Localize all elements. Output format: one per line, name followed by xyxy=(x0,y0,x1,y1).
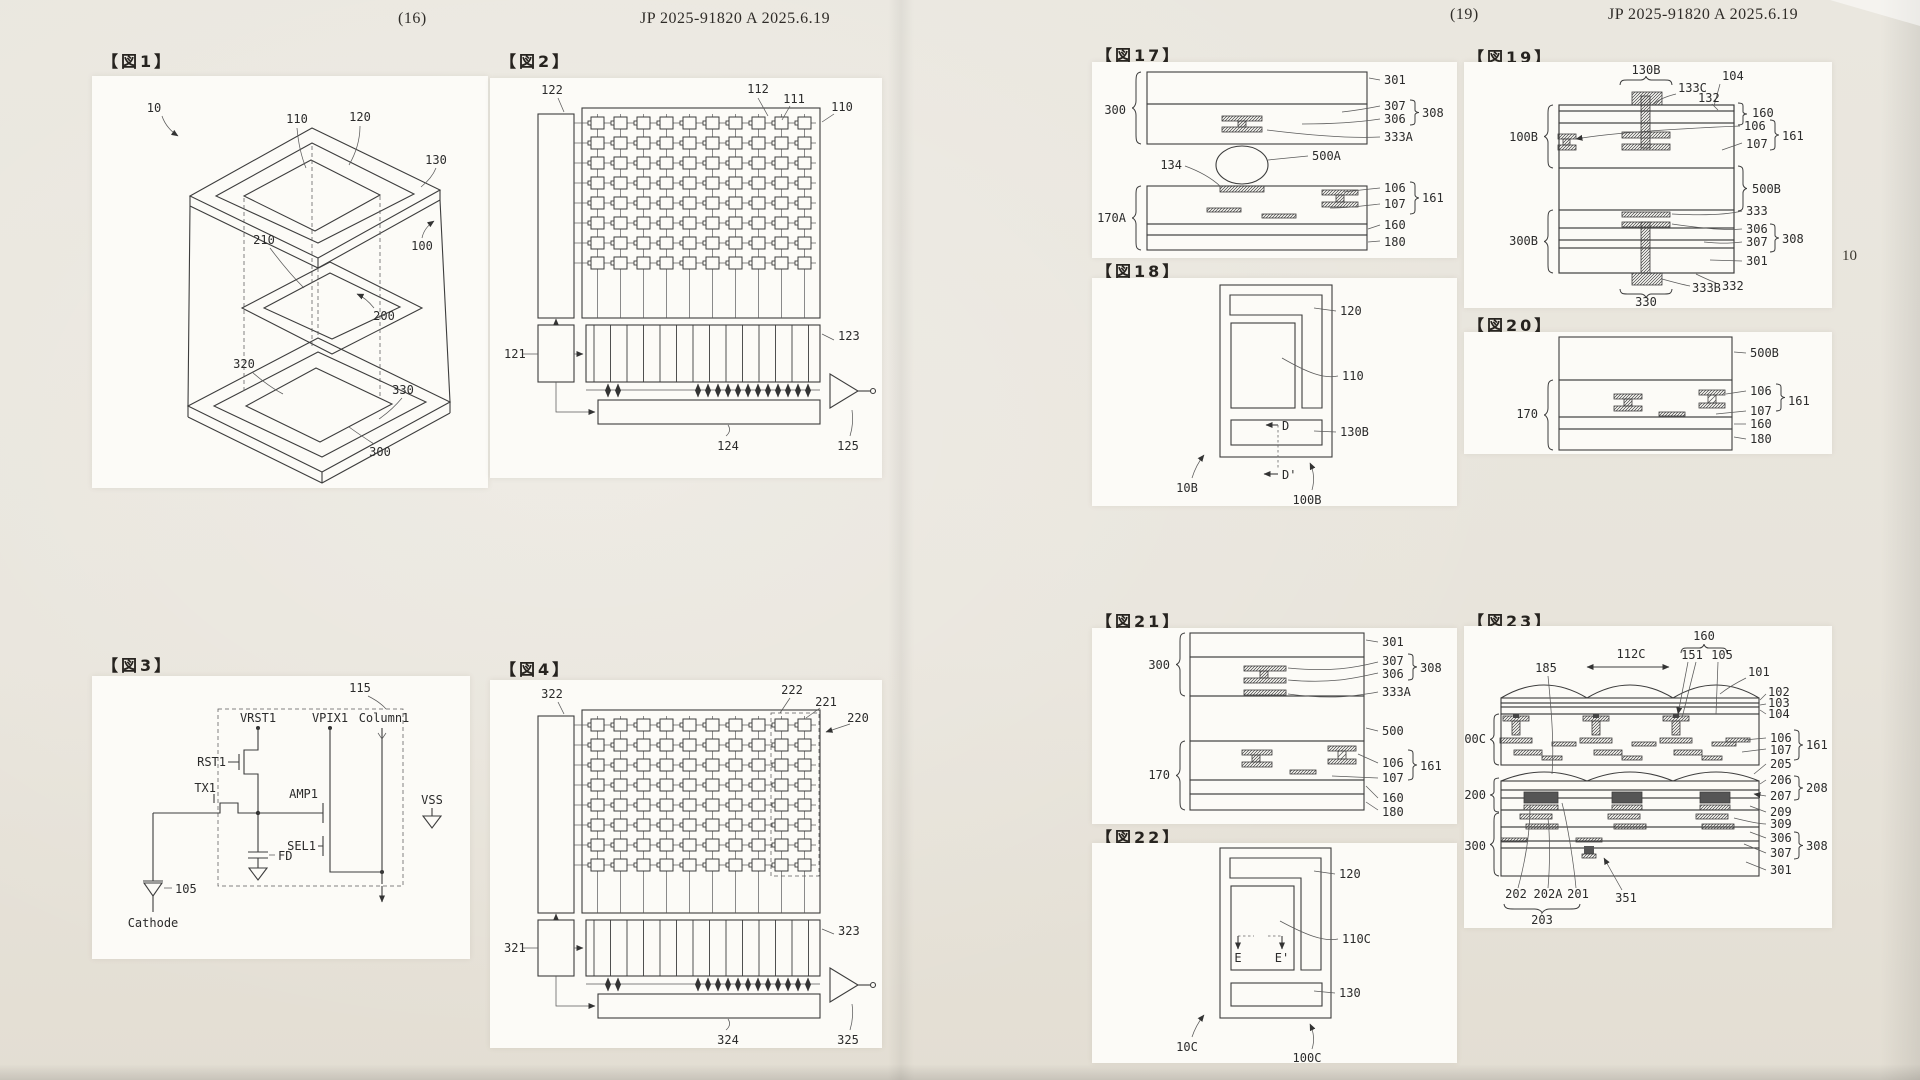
ref-label-130B: 130B xyxy=(1340,425,1369,439)
ref-label-105: 105 xyxy=(1711,648,1733,662)
fig1-title: 【図1】 xyxy=(102,48,173,72)
ref-label-308: 308 xyxy=(1806,839,1828,853)
figure-18-panel: 120 110 130B D D' 10B 100B xyxy=(1092,278,1457,506)
fig21-layers xyxy=(1176,633,1417,810)
ref-label-115: 115 xyxy=(349,681,371,695)
fig17-ref-labels: 300 170A 301 307 306 308 333A 134 500A 1… xyxy=(1097,73,1444,249)
ref-label-130: 130 xyxy=(1339,986,1361,1000)
ref-label-160: 160 xyxy=(1750,417,1772,431)
figure-19-drawing: 130B 133C 104 132 160 106 107 161 100B 5… xyxy=(1464,62,1832,308)
ref-label-112: 112 xyxy=(747,82,769,96)
ref-label-100B: 100B xyxy=(1293,493,1322,506)
ref-label-185: 185 xyxy=(1535,661,1557,675)
figure-2-drawing: 122 112 111 110 121 123 124 125 xyxy=(490,78,882,478)
ref-label-161: 161 xyxy=(1420,759,1442,773)
figure-20-drawing: 500B 106 107 161 170 160 180 xyxy=(1464,332,1832,454)
gate-label-rst1: RST1 xyxy=(197,755,226,769)
ref-label-107: 107 xyxy=(1382,771,1404,785)
ref-label-307: 307 xyxy=(1770,846,1792,860)
ref-label-300B: 300B xyxy=(1509,234,1538,248)
ref-label-306: 306 xyxy=(1382,667,1404,681)
fig23-dark-pads xyxy=(1524,792,1730,810)
ref-label-323: 323 xyxy=(838,924,860,938)
ref-label-107: 107 xyxy=(1384,197,1406,211)
ref-label-110C: 110C xyxy=(1342,932,1371,946)
ref-label-308: 308 xyxy=(1420,661,1442,675)
ref-label-321: 321 xyxy=(504,941,526,955)
figure-4-drawing: 322 222 221 220 321 323 324 325 xyxy=(490,680,882,1048)
fig4-title: 【図4】 xyxy=(500,656,571,680)
ref-label-105: 105 xyxy=(175,882,197,896)
figure-1-panel: 10 110 120 130 100 210 200 320 330 300 xyxy=(92,76,488,488)
ref-label-106: 106 xyxy=(1744,119,1766,133)
section-label-e-prime: E' xyxy=(1275,951,1289,965)
ref-label-309: 309 xyxy=(1770,817,1792,831)
net-label-column1: Column1 xyxy=(359,711,410,725)
net-label-vss: VSS xyxy=(421,793,443,807)
figure-3-drawing: 115 VRST1 VPIX1 Column1 RST1 TX1 AMP1 SE… xyxy=(92,676,470,959)
fig2-title: 【図2】 xyxy=(500,48,571,72)
ref-label-120: 120 xyxy=(1340,304,1362,318)
paper-corner-fold xyxy=(1830,0,1920,26)
node-label-fd: FD xyxy=(278,849,292,863)
ref-label-307: 307 xyxy=(1746,235,1768,249)
section-label-d: D xyxy=(1282,419,1289,433)
ref-label-120: 120 xyxy=(349,110,371,124)
ref-label-333: 333 xyxy=(1746,204,1768,218)
ref-label-200: 200 xyxy=(1464,788,1486,802)
gate-label-amp1: AMP1 xyxy=(289,787,318,801)
figure-23-panel: 112C 160 151 105 101 185 102 103 104 100… xyxy=(1464,626,1832,928)
ref-label-100C: 100C xyxy=(1293,1051,1322,1063)
ref-label-170: 170 xyxy=(1148,768,1170,782)
ref-label-cathode: Cathode xyxy=(128,916,179,930)
ref-label-500B: 500B xyxy=(1752,182,1781,196)
ref-label-107: 107 xyxy=(1746,137,1768,151)
ref-label-161: 161 xyxy=(1788,394,1810,408)
ref-label-202A: 202A xyxy=(1534,887,1564,901)
ref-label-180: 180 xyxy=(1384,235,1406,249)
ref-label-161: 161 xyxy=(1422,191,1444,205)
ref-label-104: 104 xyxy=(1768,707,1790,721)
ref-label-151: 151 xyxy=(1681,648,1703,662)
ref-label-301: 301 xyxy=(1770,863,1792,877)
fig18-section-marks xyxy=(1264,425,1278,474)
fig2-blocks xyxy=(538,108,876,424)
fig22-outline xyxy=(1220,848,1331,1018)
ref-label-121: 121 xyxy=(504,347,526,361)
figure-18-drawing: 120 110 130B D D' 10B 100B xyxy=(1092,278,1457,506)
section-label-e: E xyxy=(1234,951,1241,965)
ref-label-170: 170 xyxy=(1516,407,1538,421)
ref-label-220: 220 xyxy=(847,711,869,725)
ref-label-161: 161 xyxy=(1806,738,1828,752)
ref-label-202: 202 xyxy=(1505,887,1527,901)
ref-label-111: 111 xyxy=(783,92,805,106)
ref-label-208: 208 xyxy=(1806,781,1828,795)
ref-label-200: 200 xyxy=(373,309,395,323)
ref-label-124: 124 xyxy=(717,439,739,453)
ref-label-125: 125 xyxy=(837,439,859,453)
ref-label-307: 307 xyxy=(1384,99,1406,113)
fig18-leaders xyxy=(1192,308,1338,490)
fig3-title: 【図3】 xyxy=(102,652,173,676)
fig3-labels: 115 VRST1 VPIX1 Column1 RST1 TX1 AMP1 SE… xyxy=(128,681,443,930)
left-doc-id: JP 2025-91820 A 2025.6.19 xyxy=(640,10,830,28)
ref-label-308: 308 xyxy=(1782,232,1804,246)
ref-label-101: 101 xyxy=(1748,665,1770,679)
ref-label-300: 300 xyxy=(1104,103,1126,117)
ref-label-306: 306 xyxy=(1746,222,1768,236)
right-page-number: (19) xyxy=(1450,6,1479,24)
page-crease xyxy=(888,0,914,1080)
fig23-leaders xyxy=(1518,662,1766,890)
ref-label-100: 100 xyxy=(411,239,433,253)
fig1-exploded-frames xyxy=(188,128,450,483)
ref-label-110: 110 xyxy=(1342,369,1364,383)
ref-label-160: 160 xyxy=(1752,106,1774,120)
ref-label-301: 301 xyxy=(1384,73,1406,87)
ref-label-325: 325 xyxy=(837,1033,859,1047)
fig19-layers xyxy=(1544,76,1779,298)
ref-label-10C: 10C xyxy=(1176,1040,1198,1054)
ref-label-106: 106 xyxy=(1750,384,1772,398)
fig23-ref-labels: 112C 160 151 105 101 185 102 103 104 100… xyxy=(1464,629,1828,927)
ref-label-180: 180 xyxy=(1750,432,1772,446)
section-label-d-prime: D' xyxy=(1282,468,1296,482)
ref-label-351: 351 xyxy=(1615,891,1637,905)
figure-4-panel: 322 222 221 220 321 323 324 325 xyxy=(490,680,882,1048)
fig20-layers xyxy=(1544,337,1785,450)
ref-label-308: 308 xyxy=(1422,106,1444,120)
ref-label-330: 330 xyxy=(1635,295,1657,308)
ref-label-100C: 100C xyxy=(1464,732,1486,746)
ref-label-201: 201 xyxy=(1567,887,1589,901)
fig21-ref-labels: 300 170 301 307 306 308 333A 500 106 107… xyxy=(1148,635,1441,819)
ref-label-120: 120 xyxy=(1339,867,1361,881)
ref-label-307: 307 xyxy=(1382,654,1404,668)
ref-label-107: 107 xyxy=(1750,404,1772,418)
margin-note: 10 xyxy=(1842,248,1857,265)
ref-label-170A: 170A xyxy=(1097,211,1127,225)
ref-label-112C: 112C xyxy=(1617,647,1646,661)
ref-label-10: 10 xyxy=(147,101,161,115)
ref-label-330: 330 xyxy=(392,383,414,397)
net-label-vpix1: VPIX1 xyxy=(312,711,348,725)
ref-label-110: 110 xyxy=(831,100,853,114)
net-label-vrst1: VRST1 xyxy=(240,711,276,725)
ref-label-130B: 130B xyxy=(1632,63,1661,77)
ref-label-123: 123 xyxy=(838,329,860,343)
ref-label-205: 205 xyxy=(1770,757,1792,771)
ref-label-300: 300 xyxy=(1148,658,1170,672)
ref-label-203: 203 xyxy=(1531,913,1553,927)
ref-label-160: 160 xyxy=(1384,218,1406,232)
left-page-number: (16) xyxy=(398,10,427,28)
ref-label-500B: 500B xyxy=(1750,346,1779,360)
ref-label-160: 160 xyxy=(1693,629,1715,643)
ref-label-107: 107 xyxy=(1770,743,1792,757)
figure-20-panel: 500B 106 107 161 170 160 180 xyxy=(1464,332,1832,454)
fig23-via-columns xyxy=(1500,714,1750,760)
ref-label-206: 206 xyxy=(1770,773,1792,787)
fig4-blocks xyxy=(538,710,876,1018)
ref-label-500A: 500A xyxy=(1312,149,1342,163)
ref-label-180: 180 xyxy=(1382,805,1404,819)
ref-label-322: 322 xyxy=(541,687,563,701)
ref-label-104: 104 xyxy=(1722,69,1744,83)
ref-label-306: 306 xyxy=(1770,831,1792,845)
ref-label-106: 106 xyxy=(1382,756,1404,770)
figure-2-panel: 122 112 111 110 121 123 124 125 xyxy=(490,78,882,478)
fig20-leaders xyxy=(1716,352,1746,439)
fig20-ref-labels: 500B 106 107 161 170 160 180 xyxy=(1516,346,1809,446)
ref-label-333A: 333A xyxy=(1382,685,1412,699)
ref-label-130: 130 xyxy=(425,153,447,167)
paper-bottom-edge xyxy=(0,1064,1920,1080)
right-doc-id: JP 2025-91820 A 2025.6.19 xyxy=(1608,6,1798,24)
ref-label-161: 161 xyxy=(1782,129,1804,143)
figure-21-drawing: 300 170 301 307 306 308 333A 500 106 107… xyxy=(1092,628,1457,824)
ref-label-333B: 333B xyxy=(1692,281,1721,295)
paper-right-edge xyxy=(1880,0,1920,1080)
figure-22-drawing: 120 110C 130 E E' 10C 100C xyxy=(1092,843,1457,1063)
ref-label-221: 221 xyxy=(815,695,837,709)
ref-label-301: 301 xyxy=(1382,635,1404,649)
ref-label-110: 110 xyxy=(286,112,308,126)
ref-label-100B: 100B xyxy=(1509,130,1538,144)
ref-label-210: 210 xyxy=(253,233,275,247)
figure-17-panel: 300 170A 301 307 306 308 333A 134 500A 1… xyxy=(1092,62,1457,258)
ref-label-134: 134 xyxy=(1160,158,1182,172)
ref-label-10B: 10B xyxy=(1176,481,1198,495)
figure-21-panel: 300 170 301 307 306 308 333A 500 106 107… xyxy=(1092,628,1457,824)
figure-1-drawing: 10 110 120 130 100 210 200 320 330 300 xyxy=(92,76,488,488)
ref-label-500: 500 xyxy=(1382,724,1404,738)
patent-scan-page: { "header_left": {"page_num": "(16)", "d… xyxy=(0,0,1920,1080)
ref-label-320: 320 xyxy=(233,357,255,371)
ref-label-160: 160 xyxy=(1382,791,1404,805)
figure-17-drawing: 300 170A 301 307 306 308 333A 134 500A 1… xyxy=(1092,62,1457,258)
ref-label-300: 300 xyxy=(1464,839,1486,853)
ref-label-106: 106 xyxy=(1384,181,1406,195)
fig22-section-marks xyxy=(1238,936,1282,949)
fig18-ref-labels: 120 110 130B D D' 10B 100B xyxy=(1176,304,1369,506)
ref-label-301: 301 xyxy=(1746,254,1768,268)
fig23-layers xyxy=(1490,644,1803,913)
ref-label-132: 132 xyxy=(1698,91,1720,105)
ref-label-207: 207 xyxy=(1770,789,1792,803)
gate-label-tx1: TX1 xyxy=(194,781,216,795)
figure-3-panel: 115 VRST1 VPIX1 Column1 RST1 TX1 AMP1 SE… xyxy=(92,676,470,959)
figure-22-panel: 120 110C 130 E E' 10C 100C xyxy=(1092,843,1457,1063)
fig22-leaders xyxy=(1192,871,1338,1049)
fig22-ref-labels: 120 110C 130 E E' 10C 100C xyxy=(1176,867,1371,1063)
figure-23-drawing: 112C 160 151 105 101 185 102 103 104 100… xyxy=(1464,626,1832,928)
ref-label-333A: 333A xyxy=(1384,130,1414,144)
ref-label-324: 324 xyxy=(717,1033,739,1047)
fig3-circuit xyxy=(143,696,441,912)
ref-label-306: 306 xyxy=(1384,112,1406,126)
fig19-leaders xyxy=(1576,84,1742,286)
figure-19-panel: 130B 133C 104 132 160 106 107 161 100B 5… xyxy=(1464,62,1832,308)
ref-label-332: 332 xyxy=(1722,279,1744,293)
ref-label-300: 300 xyxy=(369,445,391,459)
ref-label-122: 122 xyxy=(541,83,563,97)
ref-label-222: 222 xyxy=(781,683,803,697)
